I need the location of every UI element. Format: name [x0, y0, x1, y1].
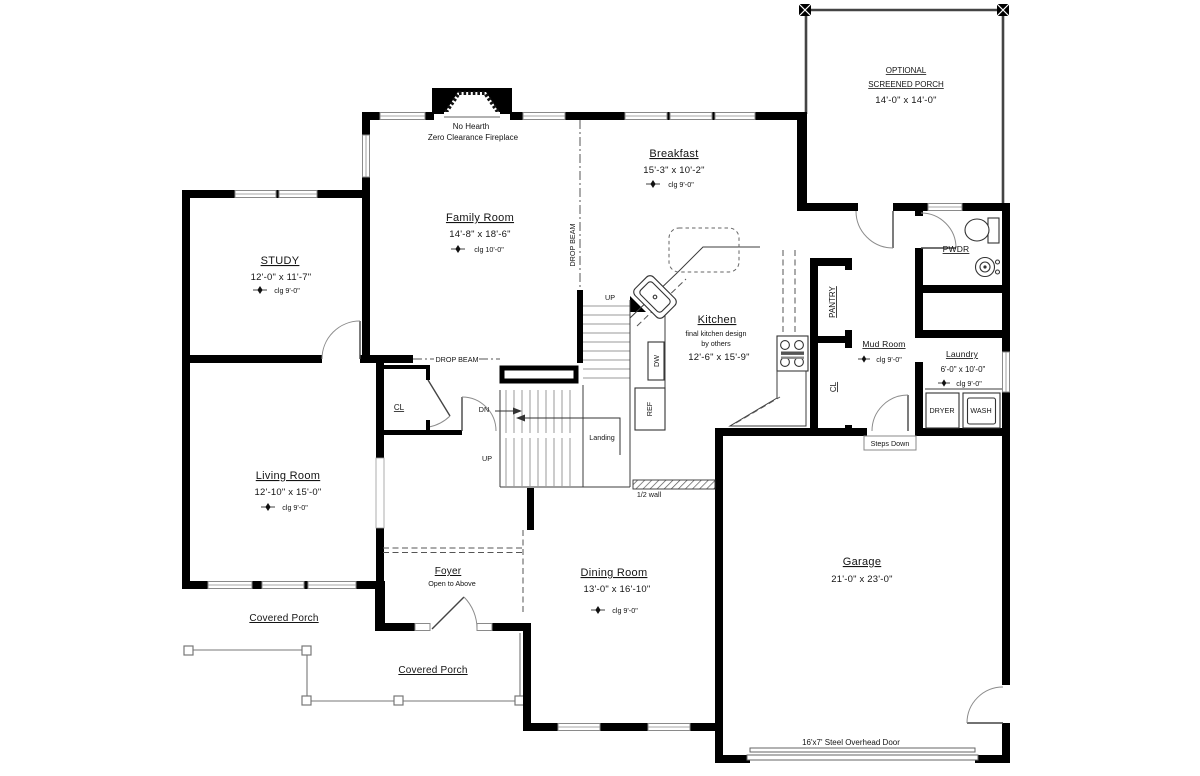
kitchen-name: Kitchen: [698, 314, 737, 326]
family-room-dims: 14'-8" x 18'-6": [449, 229, 510, 240]
hall-closet-door: [428, 380, 450, 427]
basement-stair-door: [462, 397, 496, 431]
half-wall-label: 1/2 wall: [637, 490, 662, 499]
window: [208, 582, 252, 589]
half-wall: [633, 480, 715, 489]
overhead-door-panel: [750, 748, 975, 752]
hall-closet-walls: [384, 367, 430, 433]
stair-up-bottom-label: UP: [482, 454, 492, 463]
powder-room-door: [921, 213, 956, 248]
window: [279, 191, 317, 198]
garage-dims: 21'-0" x 23'-0": [831, 574, 892, 585]
covered-porch-left-label: Covered Porch: [249, 613, 318, 624]
fireplace: [432, 88, 512, 119]
foyer-name: Foyer: [435, 566, 462, 577]
front-door: [432, 597, 477, 629]
breakfast-table: [669, 228, 739, 272]
drop-beam-h-label: DROP BEAM: [435, 355, 478, 364]
screened-porch-dims: 14'-0" x 14'-0": [875, 95, 936, 106]
window: [928, 204, 962, 211]
floor-plan-drawing: OPTIONAL SCREENED PORCH 14'-0" x 14'-0" …: [0, 0, 1200, 776]
kitchen-note-2: by others: [701, 339, 731, 348]
mud-room-door: [872, 395, 908, 431]
garage-features: [747, 436, 978, 760]
window: [715, 113, 755, 120]
refrigerator-label: REF: [645, 401, 654, 416]
screened-porch-label-1: OPTIONAL: [886, 66, 927, 75]
window: [523, 113, 565, 120]
window: [380, 113, 425, 120]
front-door-sidelight: [477, 624, 492, 631]
washer-label: WASH: [970, 406, 991, 415]
window: [670, 113, 712, 120]
foyer-note: Open to Above: [428, 579, 476, 588]
labels: OPTIONAL SCREENED PORCH 14'-0" x 14'-0" …: [249, 66, 991, 747]
closet-kitchen-label: CL: [829, 381, 838, 392]
dishwasher-label: DW: [652, 355, 661, 367]
window: [648, 724, 690, 731]
garage-service-door: [967, 687, 1003, 723]
breakfast-dims: 15'-3" x 10'-2": [643, 165, 704, 176]
front-door-sidelight: [415, 624, 430, 631]
stair-up-top-label: UP: [605, 293, 615, 302]
laundry-dims: 6'-0" x 10'-0": [941, 365, 986, 374]
window: [1003, 352, 1010, 392]
windows: [208, 113, 1010, 731]
study-clg: clg 9'-0": [274, 286, 300, 295]
family-room-name: Family Room: [446, 212, 514, 224]
fireplace-note-1: No Hearth: [453, 122, 489, 131]
drop-beam-v-label: DROP BEAM: [568, 223, 577, 266]
study-door: [322, 321, 360, 359]
sink-icon: [976, 258, 1000, 277]
powder-room-fixtures: [965, 218, 1000, 277]
family-room-clg: clg 10'-0": [474, 245, 504, 254]
stair-rail: [502, 368, 576, 381]
closet-hall-label: CL: [394, 403, 405, 412]
window: [308, 582, 356, 589]
kitchen-dims: 12'-6" x 15'-9": [688, 352, 749, 363]
screened-porch-door: [856, 211, 893, 248]
overhead-door-panel: [747, 755, 978, 760]
mud-room-name: Mud Room: [862, 339, 905, 349]
living-room-clg: clg 9'-0": [282, 503, 308, 512]
window: [235, 191, 276, 198]
kitchen-note-1: final kitchen design: [685, 329, 746, 338]
fireplace-note-2: Zero Clearance Fireplace: [428, 133, 519, 142]
pantry-label: PANTRY: [828, 285, 837, 317]
range-icon: [777, 336, 808, 371]
mud-room-clg: clg 9'-0": [876, 355, 902, 364]
screened-porch-label-2: SCREENED PORCH: [868, 80, 944, 89]
floor-plan-page: OPTIONAL SCREENED PORCH 14'-0" x 14'-0" …: [0, 0, 1200, 776]
stair-landing-label: Landing: [589, 433, 615, 442]
breakfast-name: Breakfast: [649, 148, 698, 160]
garage-name: Garage: [843, 556, 882, 568]
porch-corner-post-icon: [997, 4, 1009, 16]
overhead-door-label: 16'x7' Steel Overhead Door: [802, 738, 900, 747]
dining-room-dims: 13'-0" x 16'-10": [584, 584, 651, 595]
kitchen-sink-icon: [632, 274, 679, 321]
cased-opening: [376, 458, 384, 528]
covered-porch-right-label: Covered Porch: [398, 665, 467, 676]
window: [625, 113, 667, 120]
porch-corner-post-icon: [799, 4, 811, 16]
dryer-label: DRYER: [929, 406, 954, 415]
dining-room-name: Dining Room: [581, 567, 648, 579]
stair-dn-label: DN: [479, 405, 489, 414]
stair-up-run: [500, 300, 630, 487]
laundry-name: Laundry: [946, 349, 979, 359]
toilet-icon: [965, 218, 999, 243]
stairs: [495, 300, 630, 487]
dining-room-clg: clg 9'-0": [612, 606, 638, 615]
living-room-name: Living Room: [256, 470, 320, 482]
window: [262, 582, 304, 589]
laundry-clg: clg 9'-0": [956, 379, 982, 388]
window: [558, 724, 600, 731]
study-dims: 12'-0" x 11'-7": [251, 272, 312, 283]
window: [363, 135, 370, 177]
living-room-dims: 12'-10" x 15'-0": [255, 487, 322, 498]
breakfast-clg: clg 9'-0": [668, 180, 694, 189]
study-name: STUDY: [261, 255, 300, 267]
stair-lower-up-run: [506, 438, 570, 487]
powder-room-name: PWDR: [943, 244, 970, 254]
steps-down-label: Steps Down: [871, 439, 910, 448]
covered-porch-outline: [184, 633, 524, 705]
